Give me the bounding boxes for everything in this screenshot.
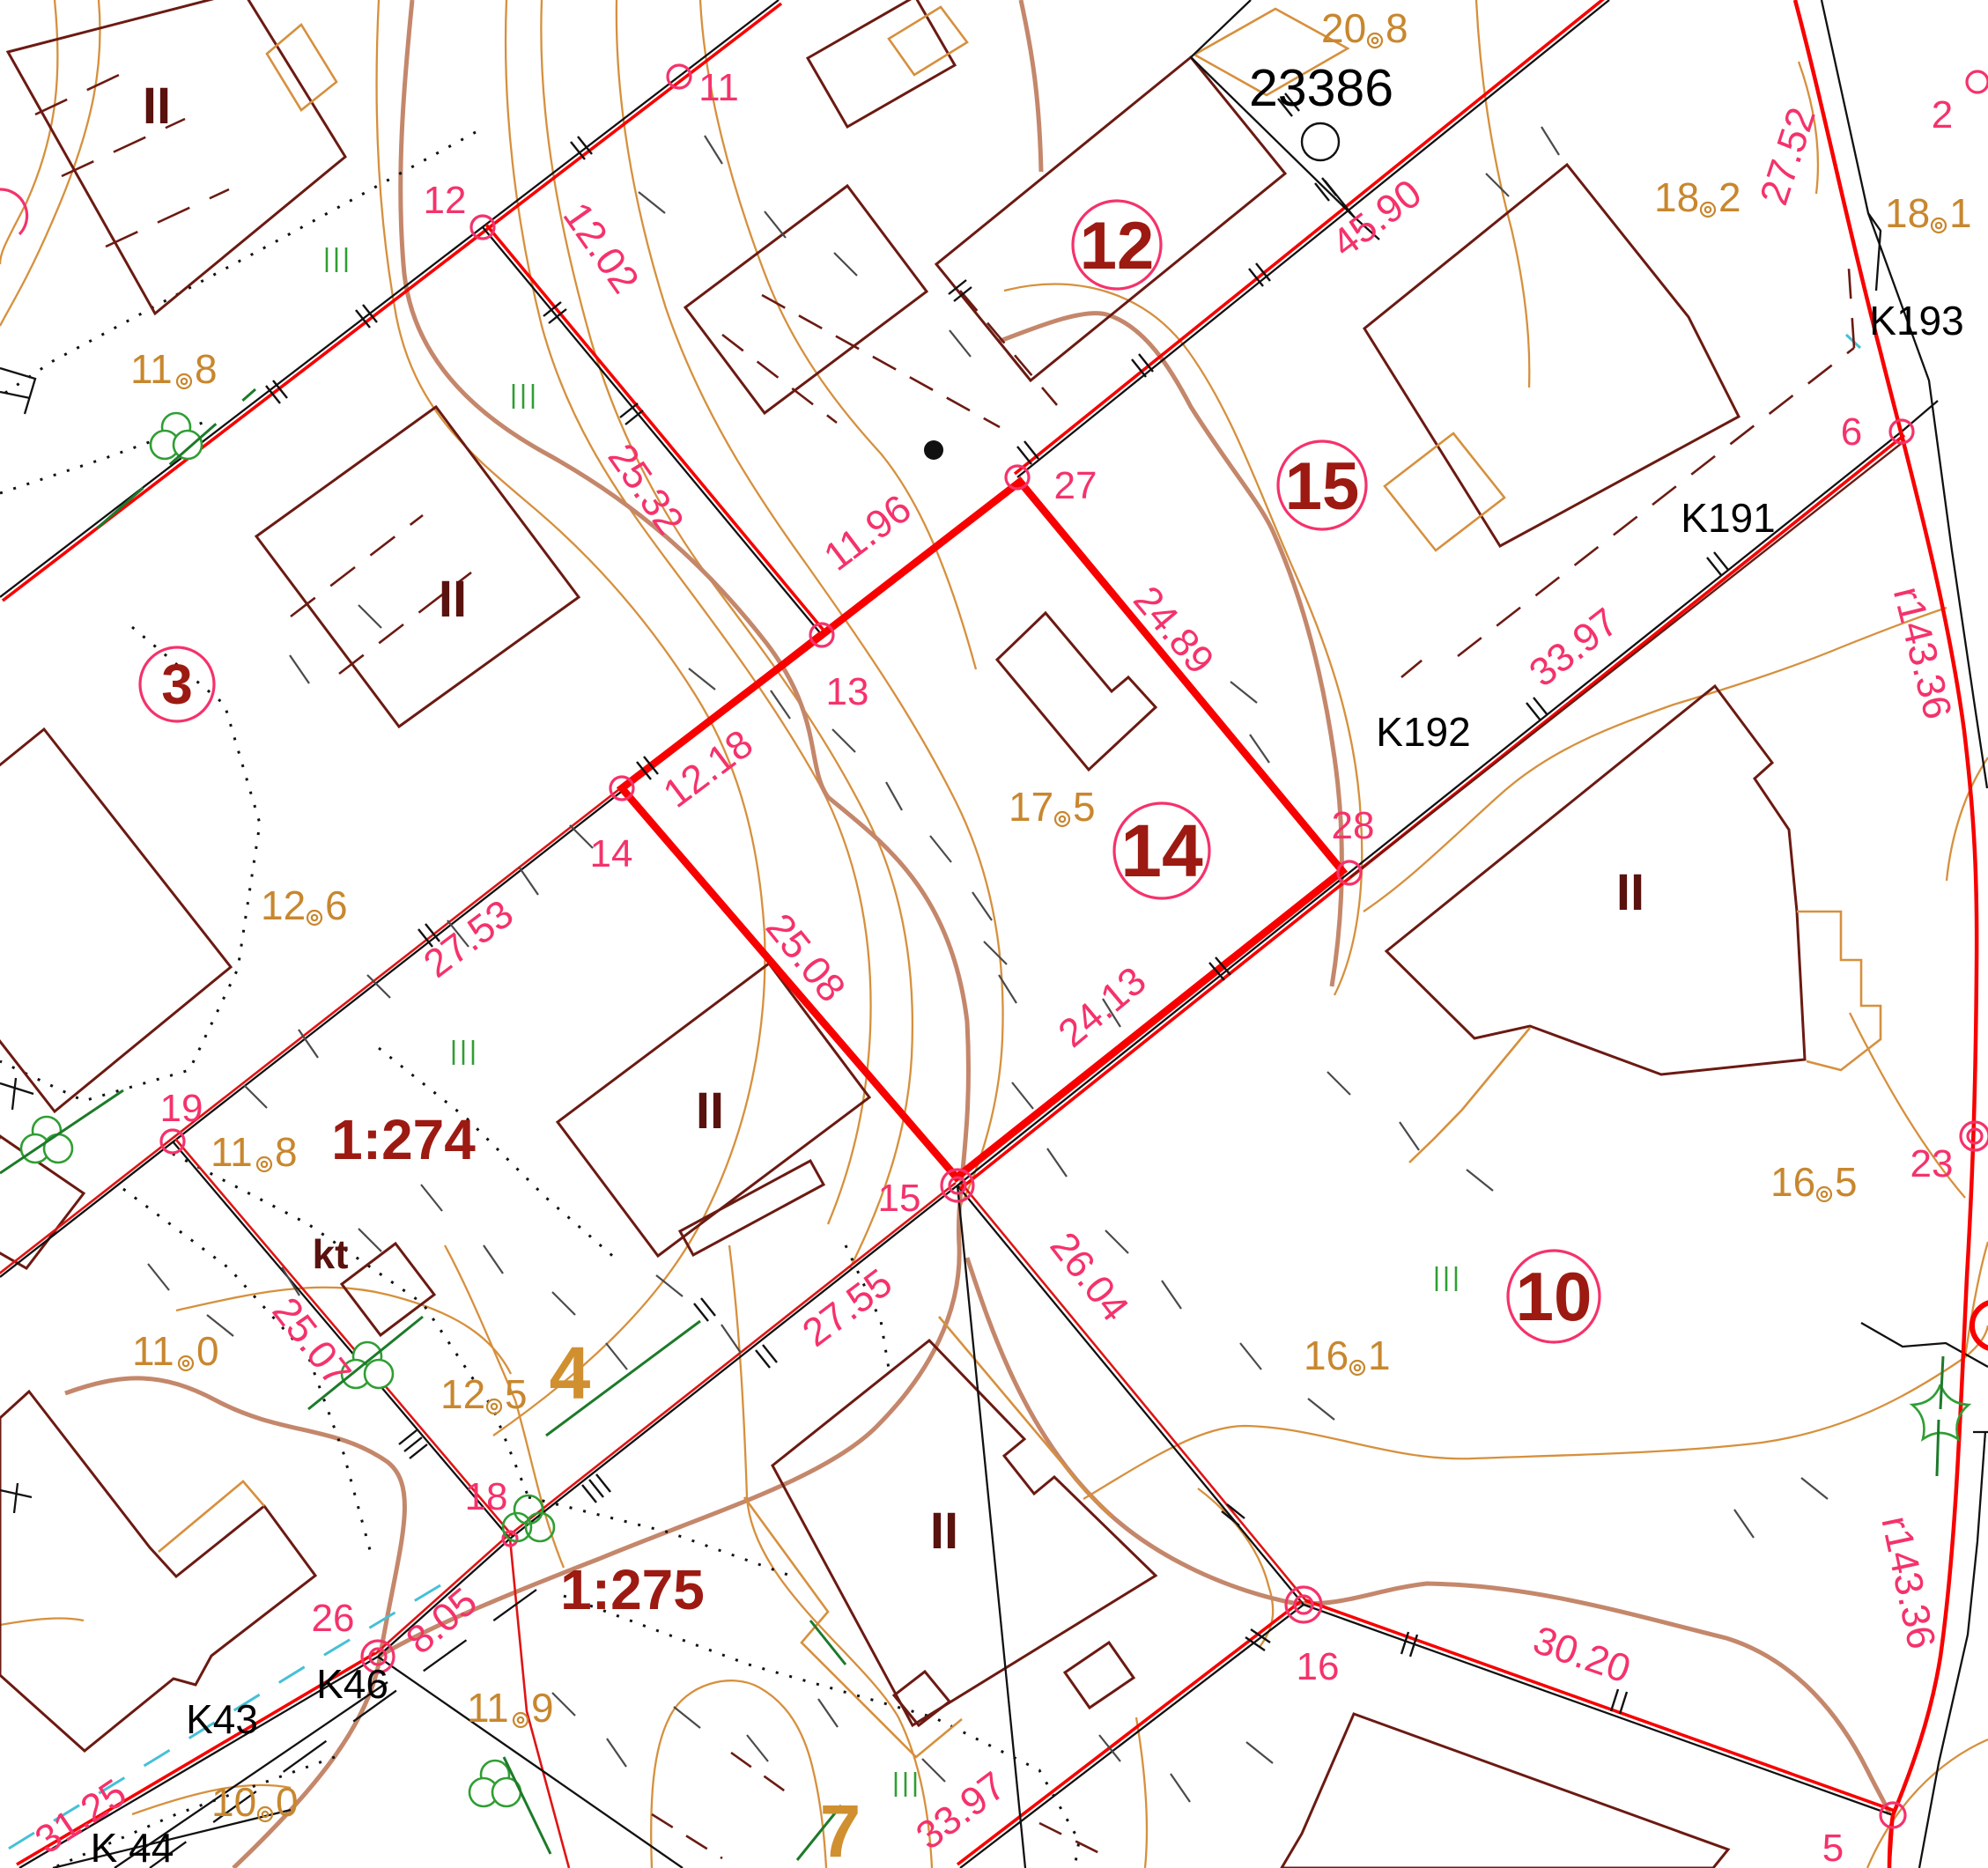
svg-text:23386: 23386 <box>1249 59 1393 117</box>
svg-text:27: 27 <box>1054 464 1097 507</box>
svg-text:26: 26 <box>312 1597 355 1640</box>
svg-text:16: 16 <box>1304 1333 1349 1378</box>
svg-text:12: 12 <box>440 1371 485 1417</box>
svg-text:6: 6 <box>325 882 348 928</box>
svg-text:2: 2 <box>1932 93 1953 137</box>
svg-text:19: 19 <box>160 1087 203 1130</box>
svg-text:K46: K46 <box>316 1661 388 1707</box>
svg-text:K193: K193 <box>1869 298 1963 343</box>
svg-text:14: 14 <box>590 832 633 875</box>
svg-text:6: 6 <box>1841 410 1862 454</box>
svg-text:II: II <box>439 571 467 628</box>
svg-text:16: 16 <box>1770 1159 1815 1205</box>
svg-text:15: 15 <box>1285 449 1360 524</box>
svg-text:11: 11 <box>132 1328 174 1374</box>
svg-text:4: 4 <box>550 1332 591 1414</box>
svg-text:12: 12 <box>1080 209 1155 284</box>
svg-text:0: 0 <box>196 1328 219 1374</box>
svg-text:5: 5 <box>1835 1159 1858 1205</box>
svg-text:8: 8 <box>1386 5 1408 51</box>
svg-text:20: 20 <box>1321 5 1366 51</box>
svg-text:11: 11 <box>211 1129 253 1175</box>
svg-text:3: 3 <box>161 653 193 716</box>
svg-text:5: 5 <box>1073 784 1096 830</box>
svg-text:1:274: 1:274 <box>331 1108 476 1171</box>
svg-text:K192: K192 <box>1376 709 1470 755</box>
svg-text:kt: kt <box>313 1231 349 1277</box>
svg-text:1: 1 <box>1368 1333 1391 1378</box>
svg-text:12: 12 <box>261 882 306 928</box>
svg-text:14: 14 <box>1120 809 1203 892</box>
svg-text:1: 1 <box>1949 190 1972 236</box>
svg-text:18: 18 <box>465 1475 508 1518</box>
svg-text:11: 11 <box>467 1685 509 1731</box>
svg-text:K 44: K 44 <box>91 1825 174 1868</box>
svg-text:II: II <box>143 78 171 135</box>
svg-text:0: 0 <box>276 1779 299 1825</box>
svg-text:8: 8 <box>195 346 218 392</box>
svg-text:5: 5 <box>1822 1827 1844 1868</box>
svg-text:II: II <box>930 1503 958 1560</box>
svg-text:II: II <box>696 1082 724 1140</box>
svg-text:10: 10 <box>1516 1258 1593 1335</box>
svg-text:11: 11 <box>698 66 739 109</box>
svg-text:10: 10 <box>211 1779 256 1825</box>
svg-text:K191: K191 <box>1681 495 1775 541</box>
svg-text:9: 9 <box>531 1685 554 1731</box>
svg-text:28: 28 <box>1332 804 1375 847</box>
svg-text:15: 15 <box>878 1177 921 1220</box>
svg-text:13: 13 <box>826 670 869 713</box>
svg-text:11: 11 <box>130 346 173 392</box>
svg-text:8: 8 <box>275 1129 298 1175</box>
svg-text:K43: K43 <box>186 1696 258 1742</box>
svg-text:23: 23 <box>1910 1142 1954 1185</box>
svg-text:1:275: 1:275 <box>560 1558 705 1621</box>
svg-text:12: 12 <box>424 179 467 222</box>
svg-text:II: II <box>1616 864 1644 921</box>
svg-text:18: 18 <box>1885 190 1930 236</box>
svg-text:18: 18 <box>1654 174 1699 220</box>
svg-text:2: 2 <box>1718 174 1741 220</box>
svg-text:17: 17 <box>1009 784 1053 830</box>
svg-text:5: 5 <box>505 1371 528 1417</box>
svg-text:16: 16 <box>1297 1645 1340 1688</box>
svg-text:7: 7 <box>820 1790 861 1868</box>
